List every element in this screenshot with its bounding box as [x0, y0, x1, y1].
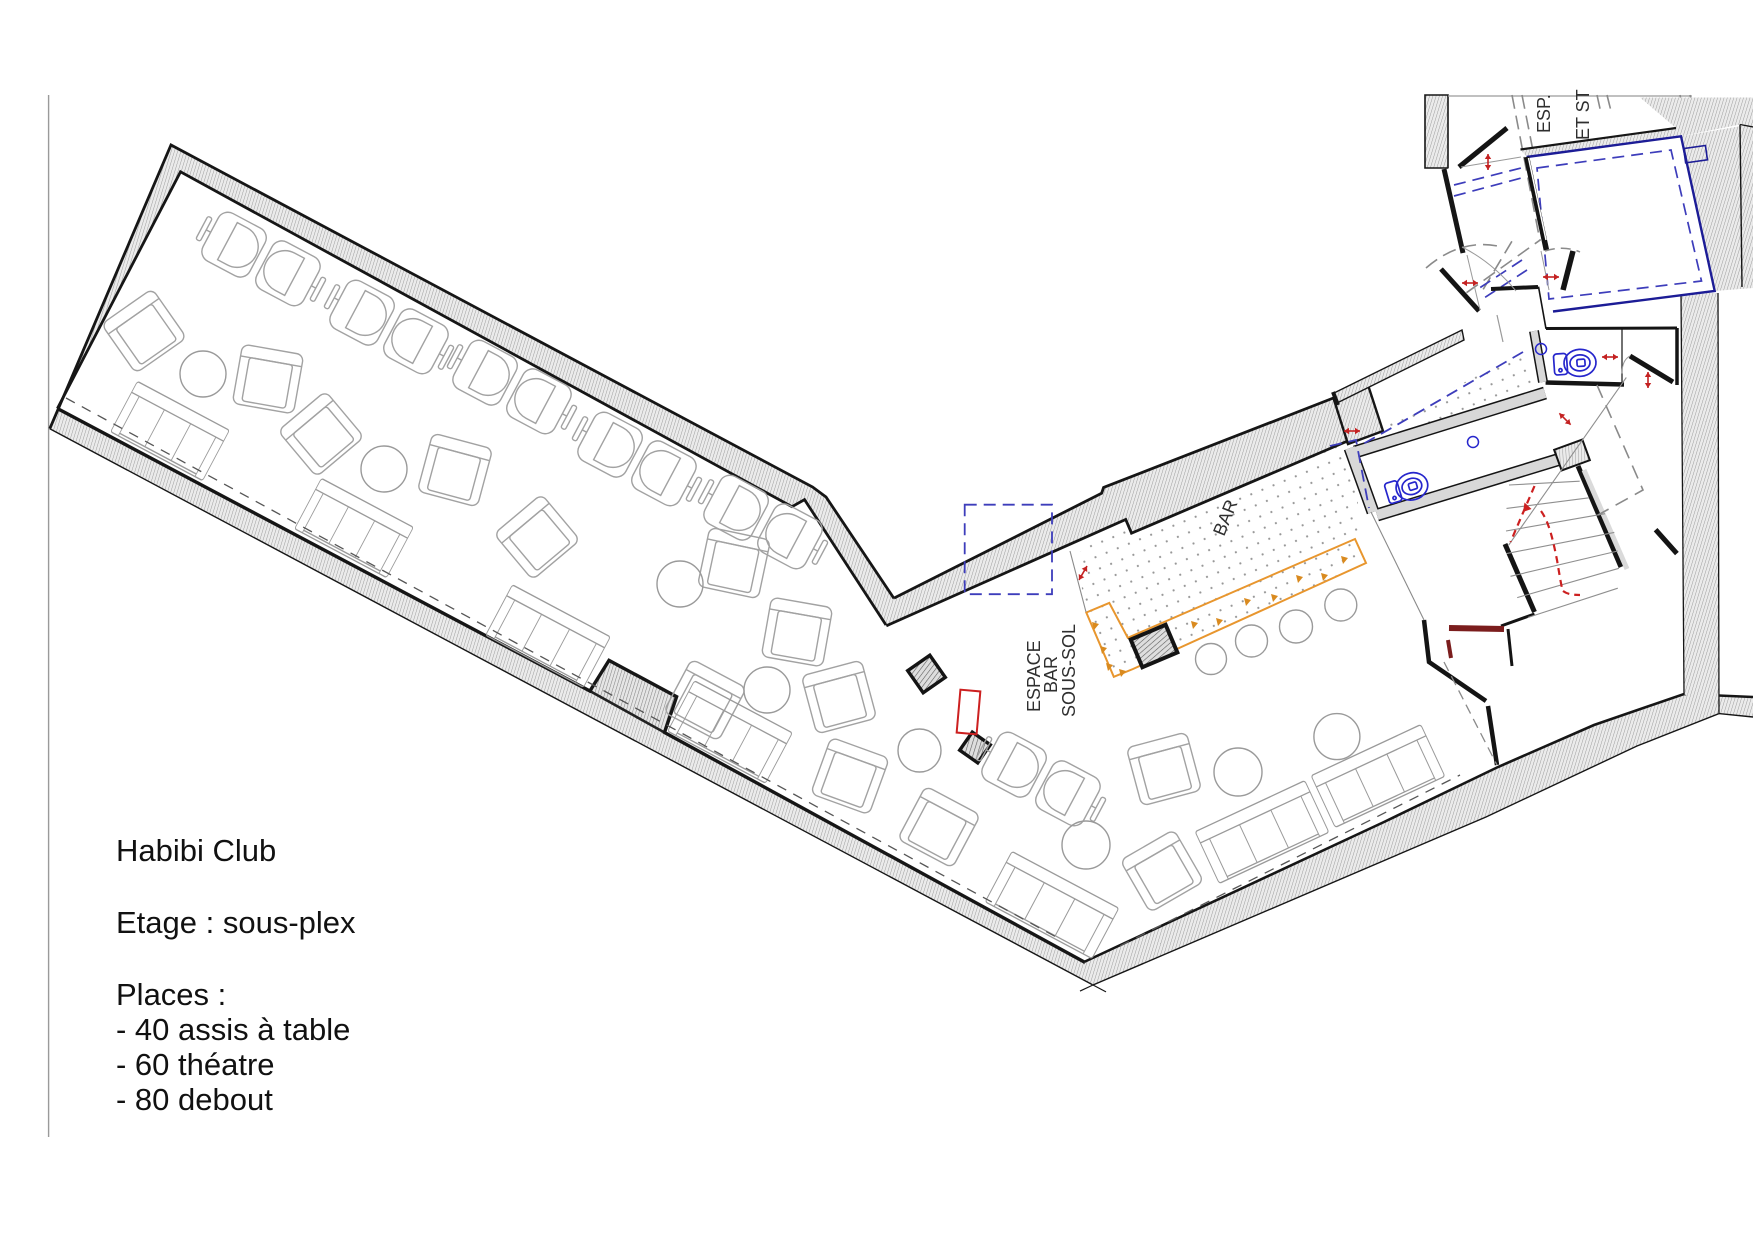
- svg-text:ESP.: ESP.: [1534, 94, 1554, 133]
- svg-text:BAR: BAR: [1041, 656, 1061, 693]
- svg-text:SOUS-SOL: SOUS-SOL: [1059, 624, 1079, 717]
- svg-text:ET ST: ET ST: [1573, 89, 1593, 140]
